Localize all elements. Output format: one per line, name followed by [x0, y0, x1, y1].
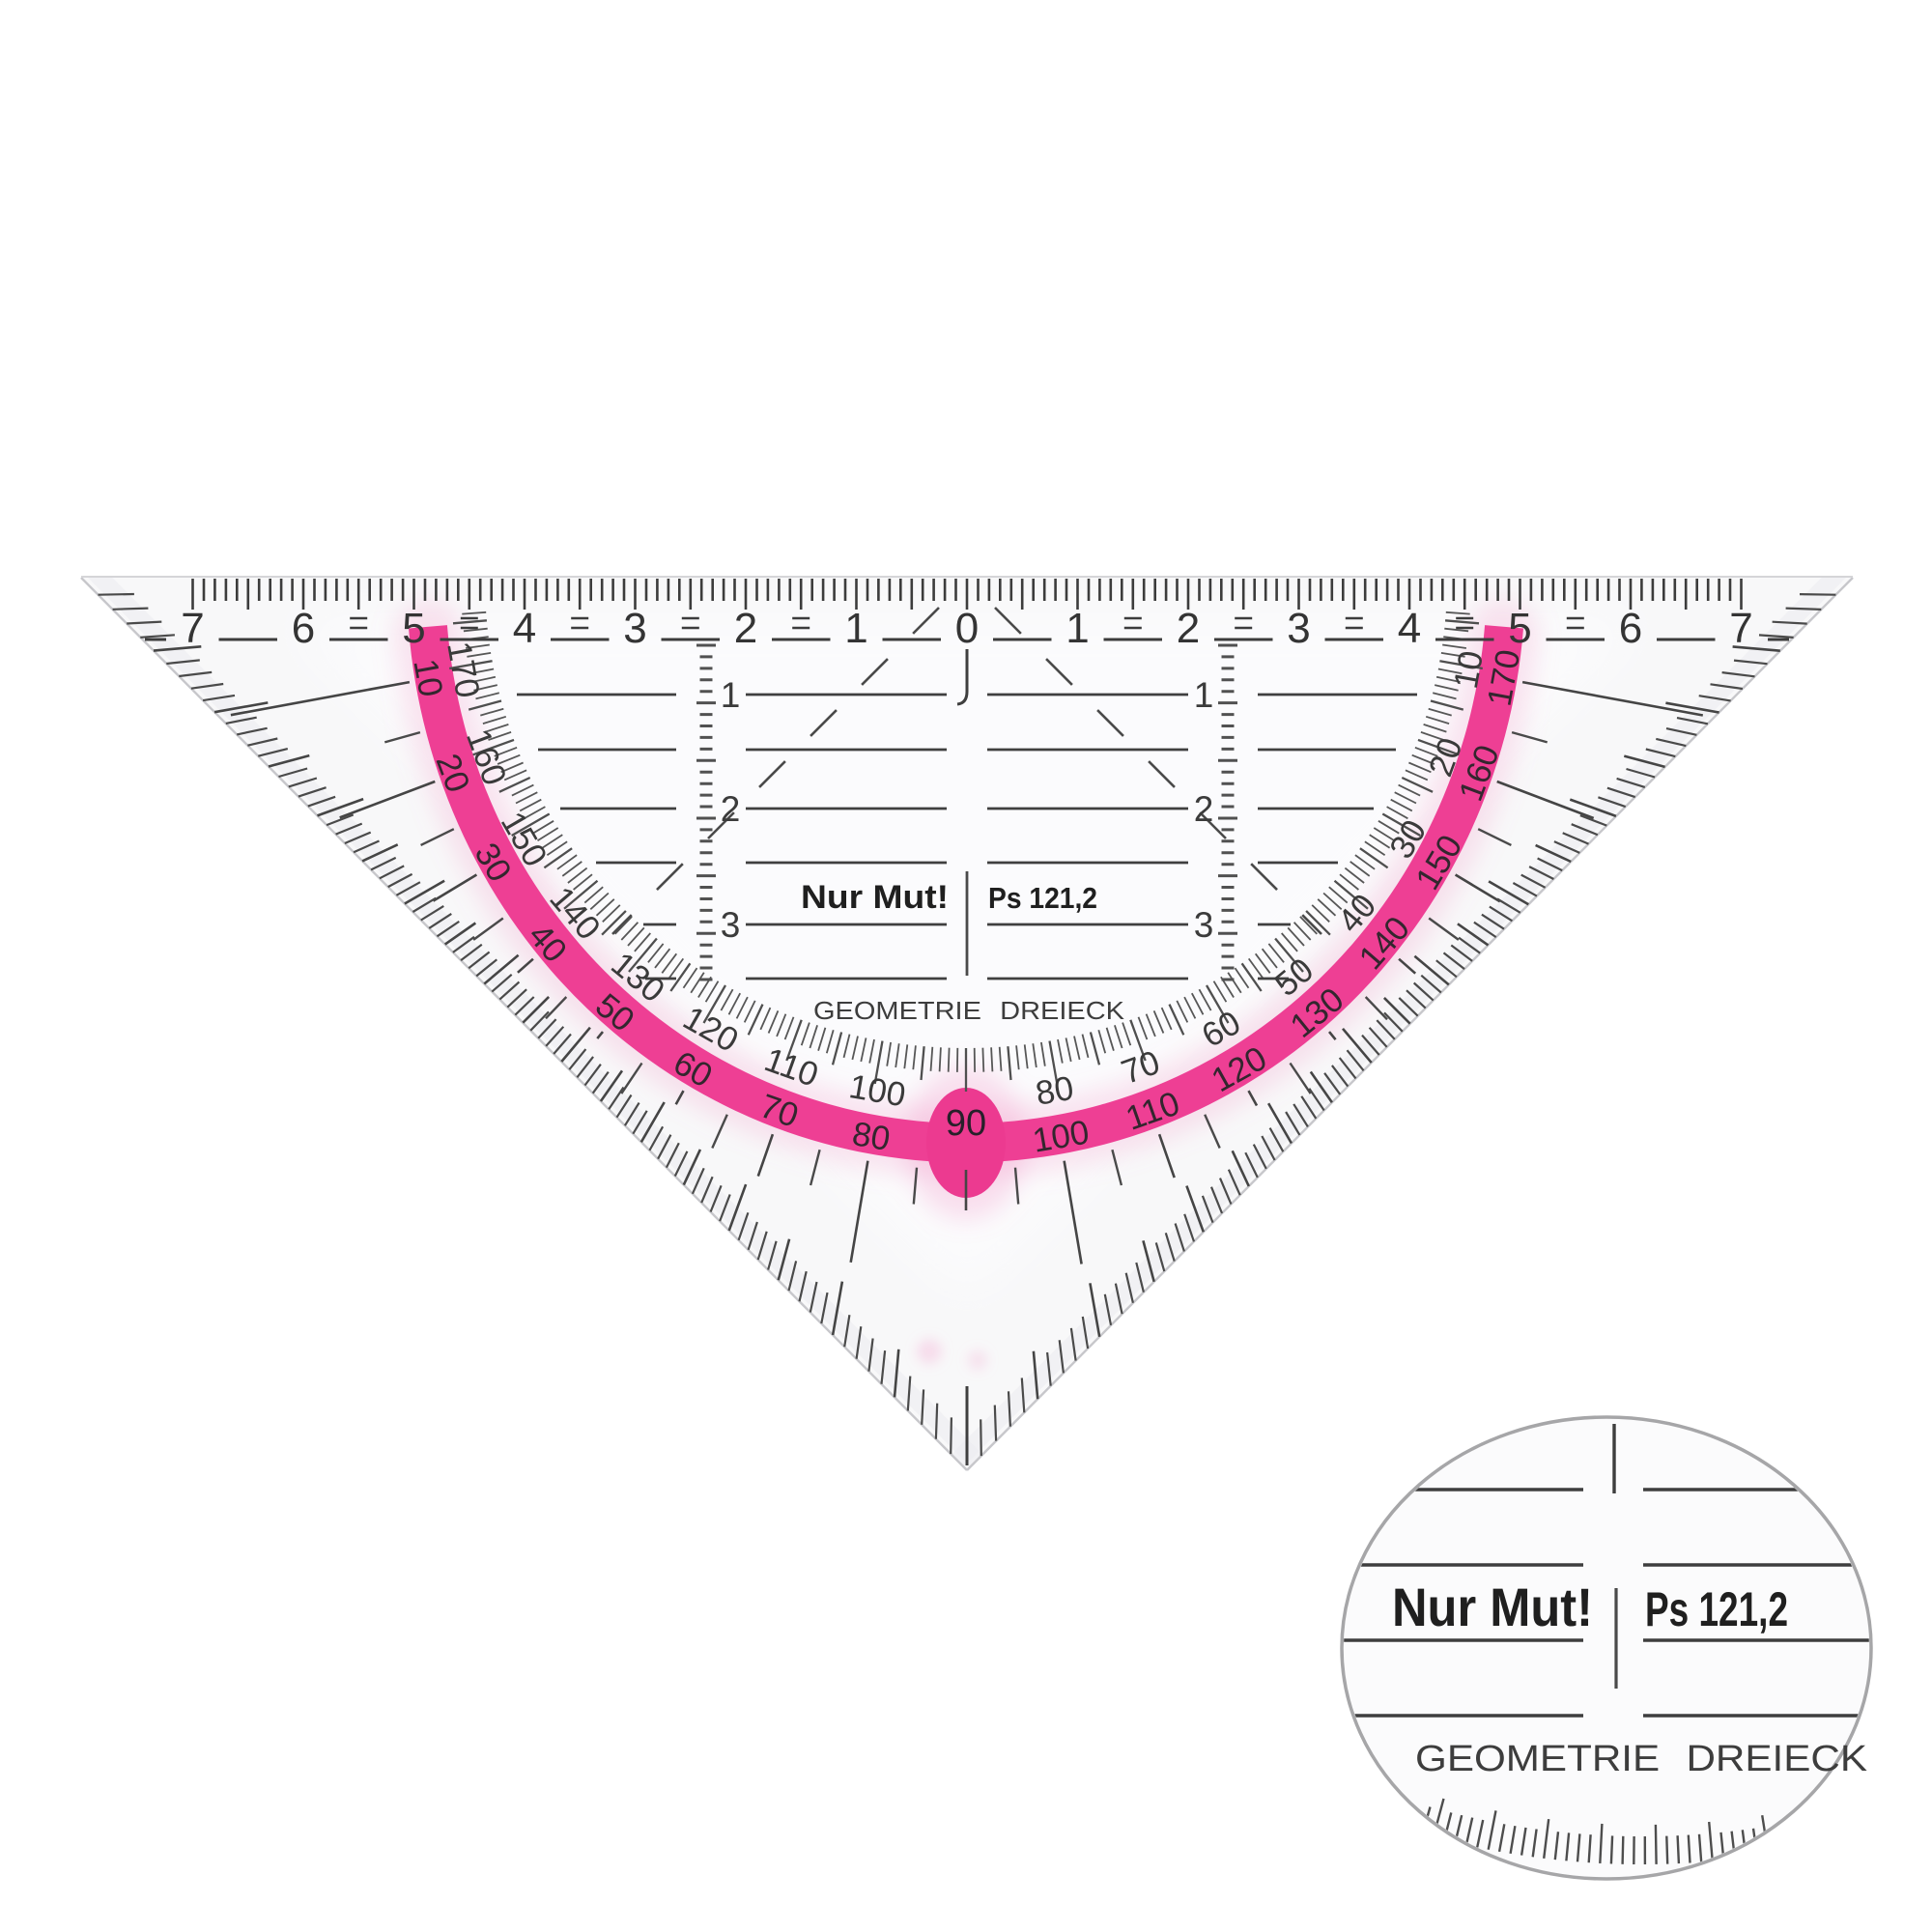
svg-text:5: 5 — [1508, 605, 1531, 652]
svg-text:5: 5 — [402, 605, 425, 652]
svg-text:80: 80 — [849, 1115, 893, 1158]
svg-text:2: 2 — [1177, 605, 1200, 652]
svg-text:0: 0 — [955, 605, 979, 652]
svg-text:GEOMETRIE DREIECK: GEOMETRIE DREIECK — [1415, 1739, 1867, 1779]
svg-text:3: 3 — [623, 605, 646, 652]
svg-text:4: 4 — [1398, 605, 1421, 652]
svg-text:1: 1 — [1065, 605, 1089, 652]
svg-text:Ps 121,2: Ps 121,2 — [988, 881, 1097, 915]
svg-text:10: 10 — [1447, 648, 1491, 692]
svg-text:2: 2 — [734, 605, 757, 652]
svg-text:7: 7 — [181, 605, 204, 652]
svg-text:4: 4 — [513, 605, 536, 652]
svg-text:2: 2 — [721, 789, 741, 829]
svg-text:3: 3 — [1287, 605, 1310, 652]
svg-text:1: 1 — [721, 675, 741, 715]
svg-text:3: 3 — [1194, 905, 1214, 945]
svg-text:80: 80 — [1033, 1069, 1076, 1113]
svg-text:2: 2 — [1194, 789, 1214, 829]
svg-text:6: 6 — [1619, 605, 1642, 652]
svg-text:1: 1 — [844, 605, 867, 652]
svg-text:90: 90 — [946, 1103, 986, 1144]
svg-text:3: 3 — [721, 905, 741, 945]
svg-text:6: 6 — [292, 605, 315, 652]
svg-text:7: 7 — [1729, 605, 1752, 652]
svg-text:1: 1 — [1194, 675, 1214, 715]
svg-text:Nur Mut!: Nur Mut! — [801, 879, 949, 916]
svg-text:Ps 121,2: Ps 121,2 — [1645, 1582, 1788, 1636]
svg-text:Nur Mut!: Nur Mut! — [1392, 1577, 1593, 1637]
svg-text:GEOMETRIE DREIECK: GEOMETRIE DREIECK — [813, 996, 1125, 1025]
